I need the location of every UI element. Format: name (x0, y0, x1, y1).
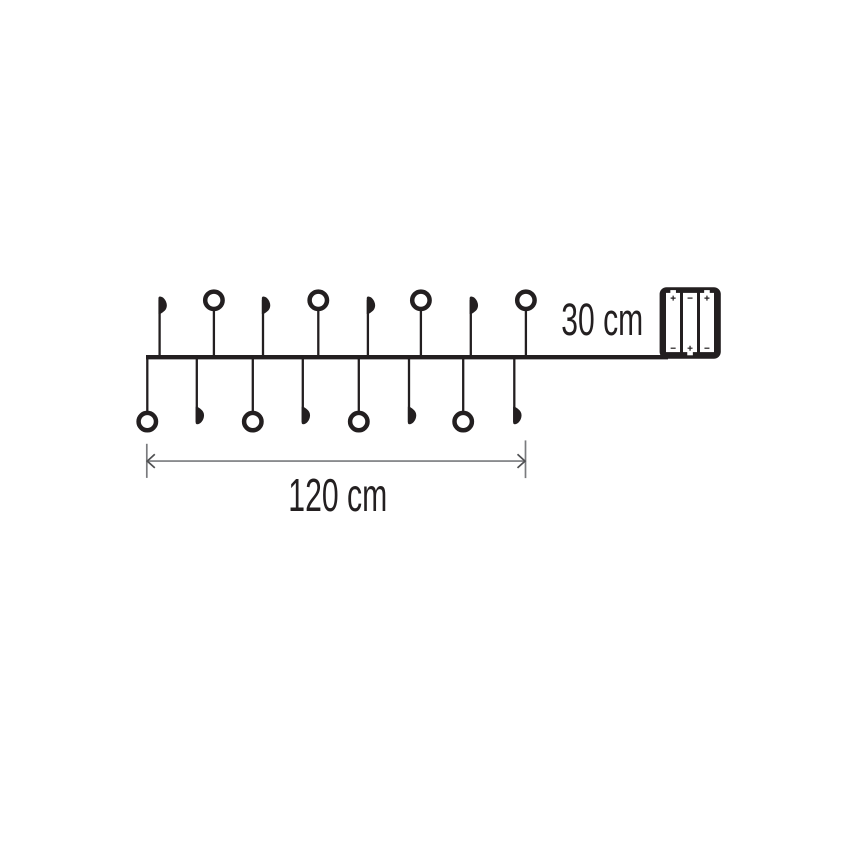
svg-text:30 cm: 30 cm (561, 294, 643, 345)
svg-text:120 cm: 120 cm (288, 469, 387, 521)
